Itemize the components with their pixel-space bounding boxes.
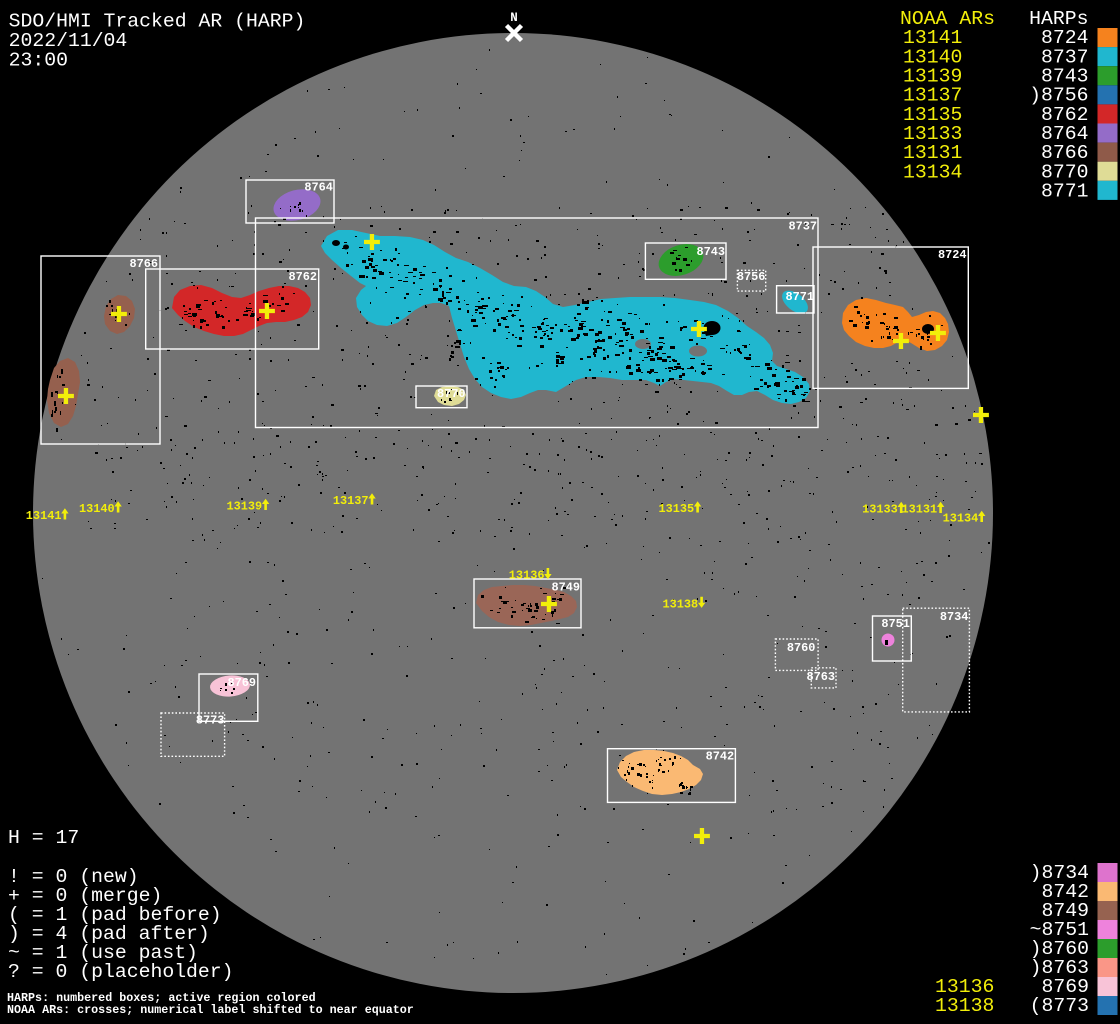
svg-text:13140: 13140 bbox=[79, 502, 115, 516]
svg-text:8743: 8743 bbox=[696, 245, 725, 259]
svg-text:13138: 13138 bbox=[935, 995, 994, 1017]
svg-text:8742: 8742 bbox=[706, 750, 735, 764]
svg-text:8771: 8771 bbox=[1041, 181, 1088, 203]
svg-text:8756: 8756 bbox=[737, 270, 766, 284]
svg-text:8770: 8770 bbox=[437, 387, 466, 401]
svg-text:13131: 13131 bbox=[902, 503, 938, 517]
svg-text:13138: 13138 bbox=[663, 597, 699, 611]
svg-text:13136: 13136 bbox=[509, 569, 545, 583]
svg-text:8773: 8773 bbox=[196, 714, 225, 728]
svg-text:23:00: 23:00 bbox=[9, 50, 68, 72]
svg-text:13134: 13134 bbox=[943, 512, 979, 526]
svg-text:13141: 13141 bbox=[26, 509, 62, 523]
svg-text:8751: 8751 bbox=[881, 617, 910, 631]
svg-text:13139: 13139 bbox=[227, 500, 263, 514]
svg-text:8763: 8763 bbox=[806, 670, 835, 684]
svg-text:13133: 13133 bbox=[862, 503, 898, 517]
svg-text:8724: 8724 bbox=[938, 248, 967, 262]
svg-text:8749: 8749 bbox=[551, 581, 580, 595]
svg-text:N: N bbox=[510, 11, 518, 25]
svg-text:8764: 8764 bbox=[304, 181, 333, 195]
svg-text:8771: 8771 bbox=[785, 290, 814, 304]
svg-text:13137: 13137 bbox=[333, 494, 369, 508]
svg-text:NOAA ARs: crosses; numerical l: NOAA ARs: crosses; numerical label shift… bbox=[7, 1003, 414, 1017]
svg-text:(8773: (8773 bbox=[1030, 995, 1089, 1017]
svg-text:H = 17: H = 17 bbox=[8, 827, 79, 849]
svg-text:8760: 8760 bbox=[787, 641, 816, 655]
svg-text:13134: 13134 bbox=[903, 161, 962, 183]
svg-text:8762: 8762 bbox=[288, 270, 317, 284]
svg-text:8734: 8734 bbox=[940, 610, 969, 624]
svg-text:8766: 8766 bbox=[129, 257, 158, 271]
svg-text:13135: 13135 bbox=[659, 502, 695, 516]
svg-text:8769: 8769 bbox=[227, 676, 256, 690]
svg-text:8737: 8737 bbox=[788, 220, 817, 234]
svg-text:? = 0 (placeholder): ? = 0 (placeholder) bbox=[8, 961, 234, 983]
